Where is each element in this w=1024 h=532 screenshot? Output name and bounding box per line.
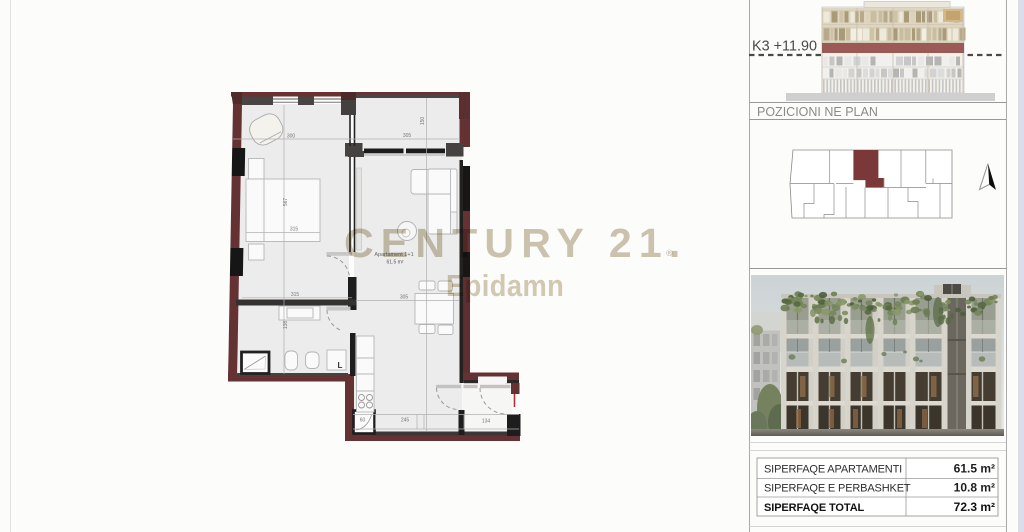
svg-text:POZICIONI NE PLAN: POZICIONI NE PLAN xyxy=(757,105,878,119)
svg-text:245: 245 xyxy=(401,418,410,424)
svg-text:10.8 m²: 10.8 m² xyxy=(954,481,995,495)
svg-text:300: 300 xyxy=(287,134,296,140)
svg-text:138: 138 xyxy=(283,321,289,330)
svg-text:134: 134 xyxy=(482,419,491,425)
svg-text:315: 315 xyxy=(290,227,299,233)
svg-text:SIPERFAQE E PERBASHKET: SIPERFAQE E PERBASHKET xyxy=(764,483,911,495)
svg-text:305: 305 xyxy=(403,133,412,139)
svg-text:305: 305 xyxy=(400,295,409,301)
svg-text:72.3 m²: 72.3 m² xyxy=(954,500,995,514)
svg-text:567: 567 xyxy=(283,198,289,207)
svg-text:SIPERFAQE TOTAL: SIPERFAQE TOTAL xyxy=(764,502,865,514)
svg-text:L: L xyxy=(338,361,343,370)
svg-text:61.5 m²: 61.5 m² xyxy=(954,462,995,476)
svg-text:K3 +11.90: K3 +11.90 xyxy=(752,39,817,55)
svg-text:315: 315 xyxy=(291,292,300,298)
svg-text:150: 150 xyxy=(420,117,426,126)
svg-text:60: 60 xyxy=(360,418,366,424)
svg-text:SIPERFAQE APARTAMENTI: SIPERFAQE APARTAMENTI xyxy=(764,464,902,476)
